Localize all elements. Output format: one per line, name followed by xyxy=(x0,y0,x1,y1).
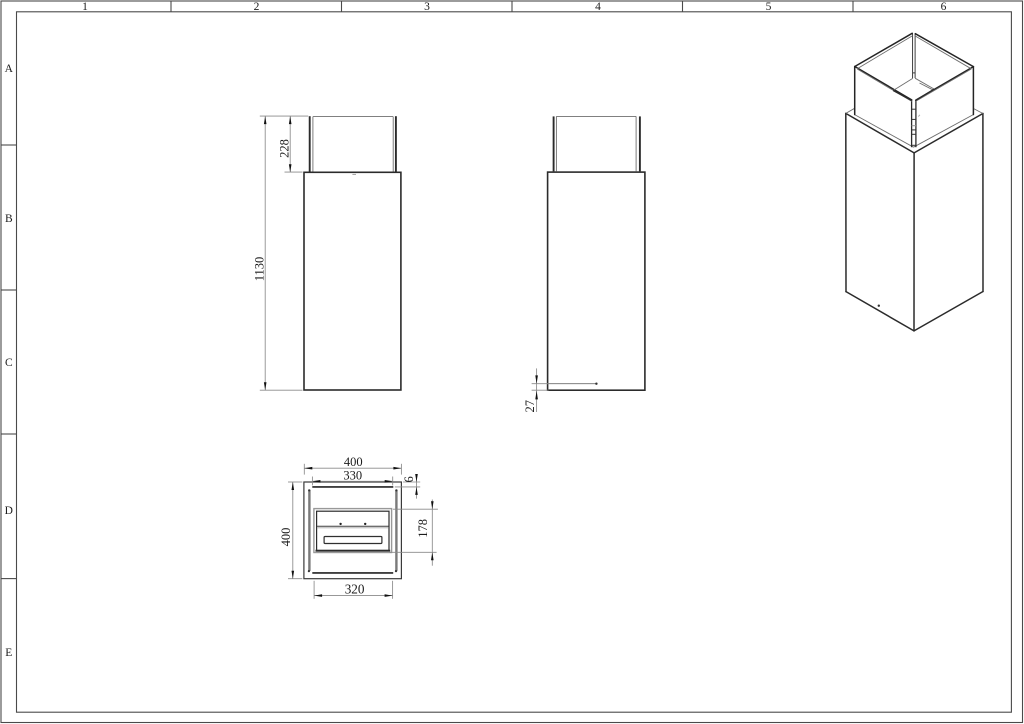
svg-text:320: 320 xyxy=(345,581,365,596)
svg-text:27: 27 xyxy=(523,400,537,413)
svg-text:228: 228 xyxy=(278,139,292,158)
svg-text:5: 5 xyxy=(766,1,772,13)
svg-text:A: A xyxy=(5,63,14,75)
svg-text:E: E xyxy=(5,647,12,659)
svg-text:4: 4 xyxy=(595,1,601,13)
svg-text:6: 6 xyxy=(941,1,947,13)
svg-text:400: 400 xyxy=(344,455,363,469)
svg-text:6: 6 xyxy=(402,476,416,482)
svg-text:178: 178 xyxy=(416,519,430,538)
svg-text:B: B xyxy=(5,213,13,225)
svg-text:1: 1 xyxy=(82,1,88,13)
svg-text:2: 2 xyxy=(254,1,260,13)
svg-text:330: 330 xyxy=(343,469,362,483)
svg-text:1130: 1130 xyxy=(253,257,267,282)
svg-text:3: 3 xyxy=(424,1,430,13)
svg-text:D: D xyxy=(5,505,13,517)
svg-text:400: 400 xyxy=(279,528,293,547)
svg-text:C: C xyxy=(5,357,13,369)
